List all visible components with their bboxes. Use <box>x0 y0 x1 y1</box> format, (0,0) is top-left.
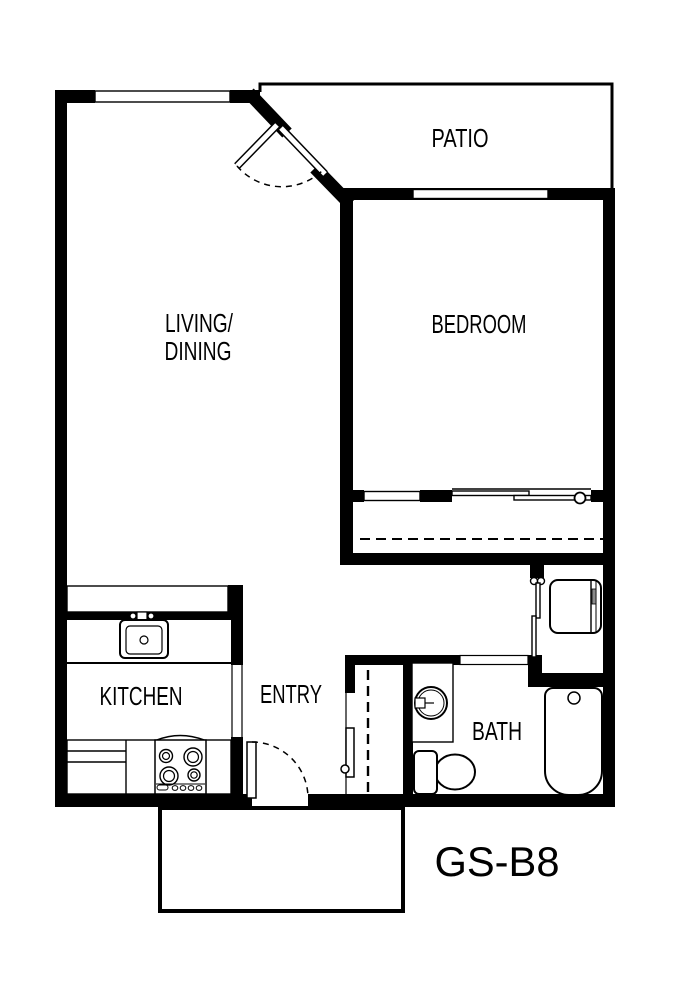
label-bedroom: BEDROOM <box>432 309 527 339</box>
entry-door-swing-arc <box>252 742 308 798</box>
slider-handle <box>575 493 586 504</box>
label-patio: PATIO <box>432 123 489 153</box>
living-window <box>95 91 230 102</box>
bedroom-interior-window <box>364 492 420 501</box>
toilet-tank <box>414 751 437 794</box>
wall-kitchen-right-lower <box>231 737 243 807</box>
wall-bottom-west <box>55 794 252 807</box>
coat-closet-door <box>341 728 354 777</box>
entry-door-leaf <box>247 742 256 798</box>
bathtub <box>545 688 602 795</box>
bath-doorway-opening <box>460 656 528 665</box>
plan-title: GS-B8 <box>435 838 560 885</box>
label-kitchen: KITCHEN <box>100 681 183 711</box>
stove-control-bar <box>157 785 168 790</box>
patio-door-panel-fill <box>281 128 325 174</box>
burner-inner <box>191 772 197 778</box>
cabinet-body <box>550 580 601 633</box>
cabinet-handle <box>592 589 596 604</box>
bedroom-sliding-door <box>452 489 591 504</box>
tub-drain <box>568 692 580 704</box>
stove <box>155 736 206 795</box>
coat-closet-door-knob <box>341 765 349 773</box>
bath-vanity <box>412 663 453 742</box>
burner-inner <box>188 752 199 763</box>
burner-inner <box>163 753 170 760</box>
wall-diagonal-upper <box>249 93 287 133</box>
bath-faucet <box>415 698 425 708</box>
nook-pocket-door <box>531 578 545 658</box>
wall-closet-bottom <box>353 553 613 565</box>
interior-walls <box>67 196 615 807</box>
wall-bedroom-bottom-a <box>340 490 364 502</box>
wall-nook-column <box>528 655 542 687</box>
vanity-cabinet <box>550 580 601 633</box>
burner-inner <box>164 771 175 782</box>
wall-coat-closet-left <box>345 655 355 693</box>
bedroom-patio-window <box>413 190 548 199</box>
wall-kitchen-halfwall <box>67 612 243 620</box>
faucet-handle-right <box>148 613 154 619</box>
label-living-line2: DINING <box>165 336 232 366</box>
wall-kitchen-right-upper <box>231 585 243 665</box>
floor-plan-page: PATIO BEDROOM LIVING/ DINING KITCHEN ENT… <box>0 0 674 998</box>
kitchen-bar-counter <box>67 586 228 612</box>
wall-nook-stub <box>530 565 544 578</box>
pocket-door-panel-b <box>532 616 536 657</box>
label-living-line1: LIVING/ <box>165 308 234 338</box>
stove-knob <box>180 786 186 791</box>
porch-outline <box>160 808 403 911</box>
sink-drain <box>140 636 148 644</box>
pocket-door-panel-a <box>536 583 540 618</box>
wall-tub-head <box>542 673 615 687</box>
floor-plan-drawing: PATIO BEDROOM LIVING/ DINING KITCHEN ENT… <box>0 0 674 998</box>
wall-left <box>55 90 67 807</box>
stove-knob <box>188 786 194 791</box>
toilet-bowl <box>435 755 475 790</box>
stove-knob <box>172 786 178 791</box>
wall-bedroom-bottom-c <box>591 490 615 502</box>
faucet-handle-left <box>130 613 136 619</box>
toilet <box>414 751 475 794</box>
porch <box>160 808 403 911</box>
wall-top-a <box>55 90 95 103</box>
label-entry: ENTRY <box>260 679 322 709</box>
patio-door-leaf-fill <box>237 125 277 166</box>
label-bath: BATH <box>472 716 522 746</box>
entry-door <box>247 742 308 798</box>
stove-knob <box>196 786 202 791</box>
patio-door-swing-arc <box>237 166 322 187</box>
wall-bedroom-left <box>340 196 353 565</box>
faucet-body <box>137 612 147 620</box>
wall-bedroom-bottom-b <box>420 490 452 502</box>
